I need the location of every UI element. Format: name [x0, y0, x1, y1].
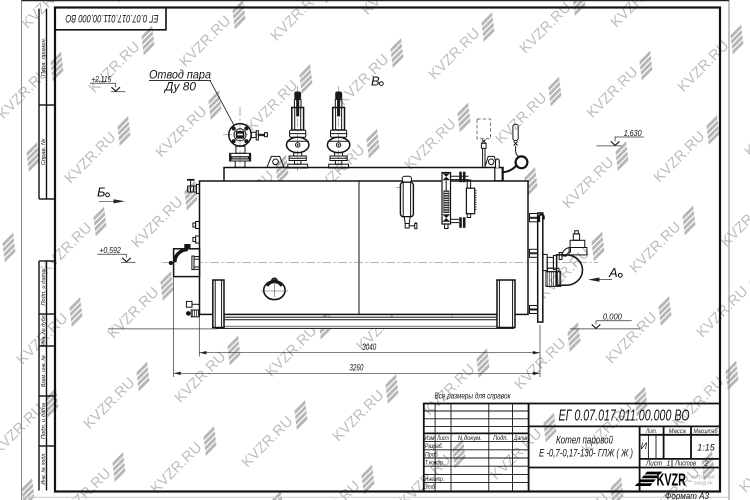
- svg-text:Формат А3: Формат А3: [665, 491, 709, 500]
- svg-text:Лист: Лист: [645, 461, 662, 468]
- svg-text:Ду 80: Ду 80: [163, 82, 197, 94]
- svg-text:ЗАВОД РФ: ЗАВОД РФ: [694, 481, 713, 486]
- svg-text:Т.контр.: Т.контр.: [425, 460, 444, 467]
- svg-text:Е -0,7-0,17-130- ГЛЖ ( Ж ): Е -0,7-0,17-130- ГЛЖ ( Ж ): [539, 448, 633, 460]
- svg-text:Взам. инв. №: Взам. инв. №: [41, 355, 47, 387]
- svg-text:1: 1: [667, 461, 671, 468]
- svg-text:Лист: Лист: [436, 435, 449, 442]
- svg-text:3040: 3040: [362, 342, 376, 352]
- svg-text:И: И: [641, 441, 648, 451]
- svg-text:Листов: Листов: [674, 461, 696, 468]
- svg-text:0,000: 0,000: [603, 312, 622, 322]
- svg-text:Дата: Дата: [513, 435, 527, 442]
- svg-text:Справ. №: Справ. №: [41, 139, 47, 165]
- svg-text:+0,592: +0,592: [99, 245, 121, 255]
- svg-text:Все размеры для справок: Все размеры для справок: [435, 392, 512, 401]
- svg-text:Инв. № подл.: Инв. № подл.: [41, 452, 47, 484]
- svg-text:Подп. и дата: Подп. и дата: [41, 402, 47, 439]
- svg-text:Б: Б: [97, 185, 106, 200]
- svg-text:1,630: 1,630: [624, 128, 642, 138]
- svg-text:Подп. и дата: Подп. и дата: [41, 269, 47, 306]
- svg-text:Инв. № дубл.: Инв. № дубл.: [41, 314, 47, 346]
- svg-text:Перв. примен.: Перв. примен.: [41, 38, 47, 77]
- svg-text:3260: 3260: [349, 362, 363, 372]
- svg-text:Подп.: Подп.: [493, 435, 508, 442]
- svg-text:КОТЕЛЬНЫЙ: КОТЕЛЬНЫЙ: [692, 473, 716, 480]
- svg-text:Изм: Изм: [425, 435, 436, 442]
- svg-text:1:15: 1:15: [697, 443, 716, 453]
- svg-text:Отвод пара: Отвод пара: [149, 70, 211, 82]
- svg-text:Лит.: Лит.: [645, 428, 657, 435]
- svg-text:Проб.: Проб.: [425, 450, 439, 458]
- svg-text:Утб.: Утб.: [424, 483, 436, 491]
- svg-text:KVZR: KVZR: [657, 470, 687, 490]
- svg-text:В: В: [371, 74, 380, 89]
- svg-text:А: А: [608, 265, 618, 280]
- svg-text:Масса: Масса: [669, 428, 687, 435]
- svg-text:+2,115: +2,115: [91, 74, 111, 84]
- svg-text:Масштаб: Масштаб: [694, 428, 718, 435]
- svg-text:Котел паровой: Котел паровой: [556, 435, 613, 447]
- svg-text:Разраб.: Разраб.: [425, 442, 443, 450]
- svg-text:Н.контр.: Н.контр.: [425, 476, 444, 483]
- svg-text:N докум.: N докум.: [458, 435, 482, 442]
- svg-text:ЕГ 0.07.017.011.00.000 ВО: ЕГ 0.07.017.011.00.000 ВО: [559, 408, 690, 425]
- svg-text:ЕГ 0.07.017.011.00.000 ВО: ЕГ 0.07.017.011.00.000 ВО: [66, 12, 159, 24]
- svg-text:2: 2: [704, 461, 709, 468]
